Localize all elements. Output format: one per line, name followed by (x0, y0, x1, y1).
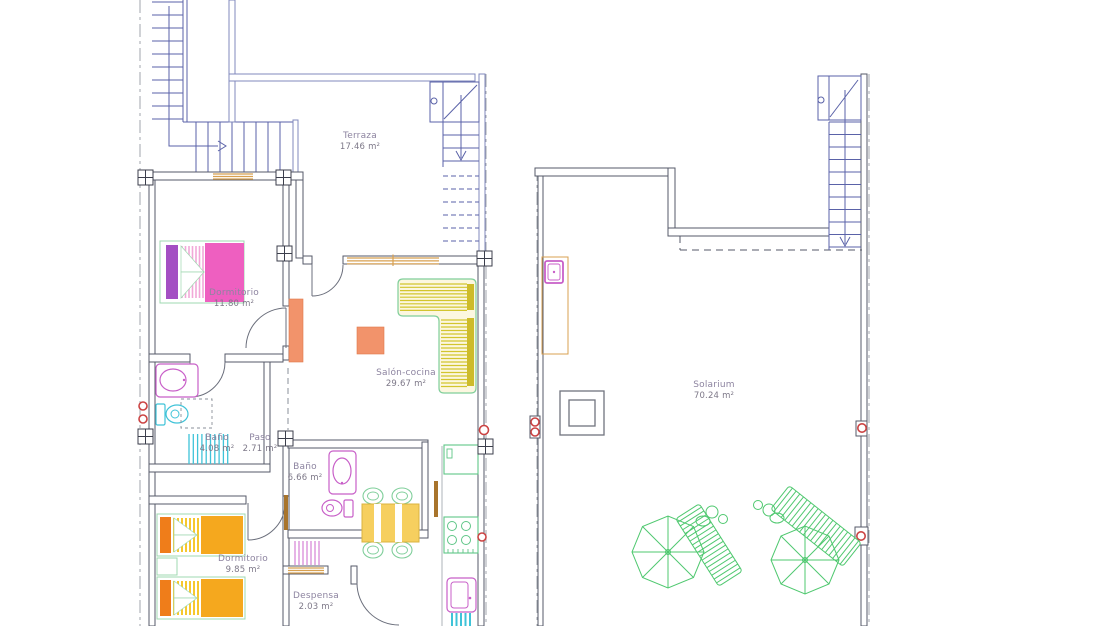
sun-lounger (676, 504, 743, 587)
staircase-entry (152, 0, 298, 172)
room-area: 11.80 m² (209, 299, 259, 310)
toilet-icon (322, 500, 342, 516)
room-label-bano-1: Baño 4.08 m² (200, 432, 235, 456)
room-area: 6.66 m² (288, 473, 323, 484)
sun-lounger (771, 486, 862, 567)
coffee-table (357, 327, 384, 354)
room-name: Baño (200, 432, 235, 444)
laundry-hatch (295, 541, 319, 565)
room-area: 70.24 m² (693, 391, 735, 402)
room-name: Despensa (293, 590, 339, 602)
door-leaf (284, 495, 288, 530)
room-area: 2.71 m² (243, 444, 278, 455)
room-label-bano-2: Baño 6.66 m² (288, 461, 323, 485)
room-area: 4.08 m² (200, 444, 235, 455)
sun-loungers (632, 486, 861, 594)
dining-table (362, 504, 419, 542)
room-label-despensa: Despensa 2.03 m² (293, 590, 339, 614)
room-label-paso: Paso 2.71 m² (243, 432, 278, 456)
parasol-icon (771, 526, 839, 594)
room-name: Solarium (693, 379, 735, 391)
stair-direction-arrow (218, 141, 226, 151)
staircase-solarium (818, 76, 861, 250)
room-name: Baño (288, 461, 323, 473)
room-label-dormitorio-1: Dormitorio 11.80 m² (209, 287, 259, 311)
room-area: 29.67 m² (376, 379, 436, 390)
room-name: Salón-cocina (376, 367, 436, 379)
terrace-walls (229, 0, 485, 256)
toilet-icon (156, 404, 165, 425)
solarium-counter (542, 257, 568, 354)
dining-set (362, 488, 419, 558)
room-area: 17.46 m² (340, 142, 380, 153)
room-area: 9.85 m² (218, 565, 268, 576)
kitchen-appliances (434, 445, 478, 626)
nightstand (157, 558, 177, 575)
chair-icon (363, 542, 383, 558)
solarium-dashed-boundary (680, 236, 862, 250)
floor-plan-drawing (0, 0, 1110, 626)
room-label-solarium: Solarium 70.24 m² (693, 379, 735, 403)
parasol-icon (632, 516, 704, 588)
room-area: 2.03 m² (293, 602, 339, 613)
room-name: Dormitorio (218, 553, 268, 565)
floor-plan-canvas: Terraza 17.46 m² Dormitorio 11.80 m² Sal… (0, 0, 1110, 626)
party-wall-axis-lines (140, 0, 869, 626)
chair-icon (392, 488, 412, 504)
chair-icon (363, 488, 383, 504)
room-name: Terraza (340, 130, 380, 142)
room-label-terraza: Terraza 17.46 m² (340, 130, 380, 154)
chair-icon (392, 542, 412, 558)
door-leaf (434, 481, 438, 517)
room-label-salon-cocina: Salón-cocina 29.67 m² (376, 367, 436, 391)
room-label-dormitorio-2: Dormitorio 9.85 m² (218, 553, 268, 577)
staircase-terrace (430, 82, 479, 241)
skylight-shaft (560, 391, 604, 435)
sideboard (289, 299, 303, 362)
room-name: Paso (243, 432, 278, 444)
room-name: Dormitorio (209, 287, 259, 299)
